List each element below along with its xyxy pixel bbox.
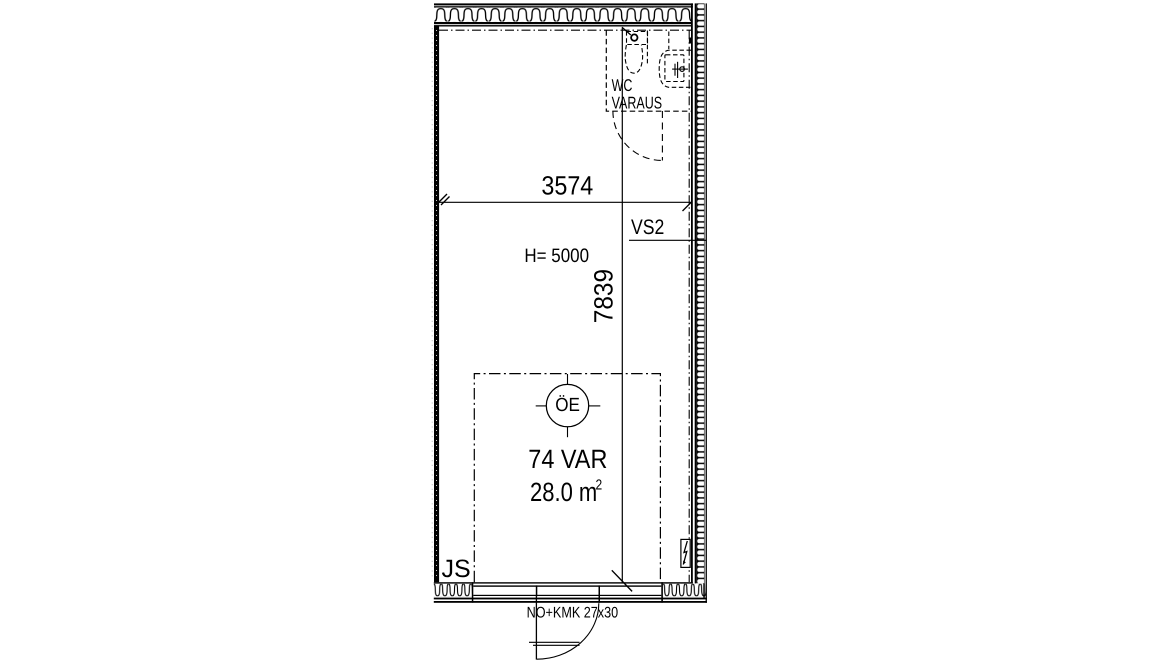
svg-text:H= 5000: H= 5000: [524, 245, 589, 267]
svg-text:7839: 7839: [589, 269, 619, 323]
svg-text:NO+KMK 27x30: NO+KMK 27x30: [527, 605, 619, 622]
svg-text:ÖE: ÖE: [555, 395, 580, 416]
svg-text:3574: 3574: [541, 170, 593, 200]
svg-text:VS2: VS2: [631, 216, 664, 239]
svg-text:VARAUS: VARAUS: [612, 94, 662, 113]
svg-text:74 VAR: 74 VAR: [528, 444, 607, 474]
svg-text:2: 2: [596, 478, 603, 494]
svg-text:JS: JS: [442, 555, 471, 583]
svg-text:28.0 m: 28.0 m: [530, 477, 597, 507]
